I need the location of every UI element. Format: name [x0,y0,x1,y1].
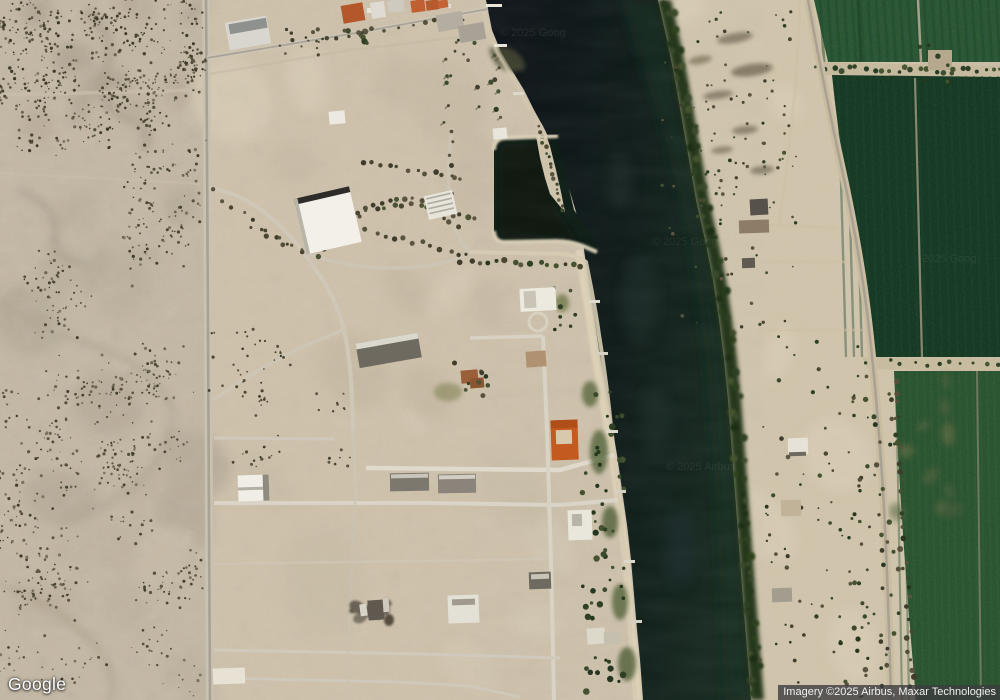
svg-text:© 2025 Airbus: © 2025 Airbus [666,461,736,473]
svg-text:© 2025 Goog: © 2025 Goog [652,236,718,248]
svg-text:© 2025 Goog: © 2025 Goog [500,27,566,39]
svg-text:2025 Goog: 2025 Goog [922,253,976,265]
